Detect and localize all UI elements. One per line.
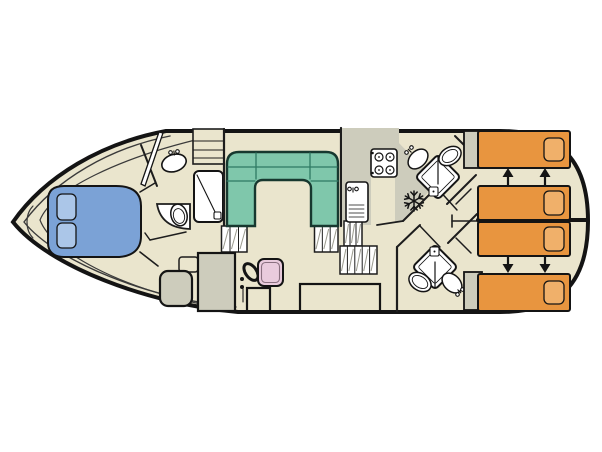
faucet-knob bbox=[175, 149, 179, 153]
faucet-spout bbox=[174, 151, 175, 156]
shelf-unit bbox=[193, 129, 224, 164]
owner-bed-pillow bbox=[57, 194, 76, 220]
faucet-knob bbox=[355, 187, 359, 191]
bed-pillow bbox=[544, 281, 564, 304]
helm-bench bbox=[160, 271, 192, 306]
owner-bed-pillow bbox=[57, 223, 76, 248]
console-dot bbox=[240, 285, 244, 289]
helm-locker bbox=[179, 257, 198, 272]
boat-floorplan bbox=[0, 0, 602, 452]
stove-burner-dot bbox=[389, 169, 391, 171]
companionway-steps bbox=[315, 226, 339, 252]
floorplan-canvas bbox=[0, 0, 602, 452]
stove-knob bbox=[371, 172, 374, 175]
faucet-knob bbox=[348, 187, 352, 191]
stove-burner-dot bbox=[389, 156, 391, 158]
companionway-steps bbox=[222, 226, 248, 252]
stove-burner-dot bbox=[378, 156, 380, 158]
aft-steps bbox=[344, 221, 362, 246]
aft-steps bbox=[340, 246, 377, 274]
console-dot bbox=[240, 277, 244, 281]
stove-burner-dot bbox=[378, 169, 380, 171]
shower-drain-dot bbox=[433, 191, 435, 193]
bed-pillow bbox=[544, 227, 564, 251]
shower-drain bbox=[214, 212, 221, 219]
stove-knob bbox=[371, 152, 374, 155]
bed-pillow bbox=[544, 138, 564, 161]
helm-cabinet bbox=[198, 253, 235, 311]
shower-drain-dot bbox=[434, 251, 436, 253]
bed-pillow bbox=[544, 191, 564, 215]
faucet-knob bbox=[169, 150, 173, 154]
